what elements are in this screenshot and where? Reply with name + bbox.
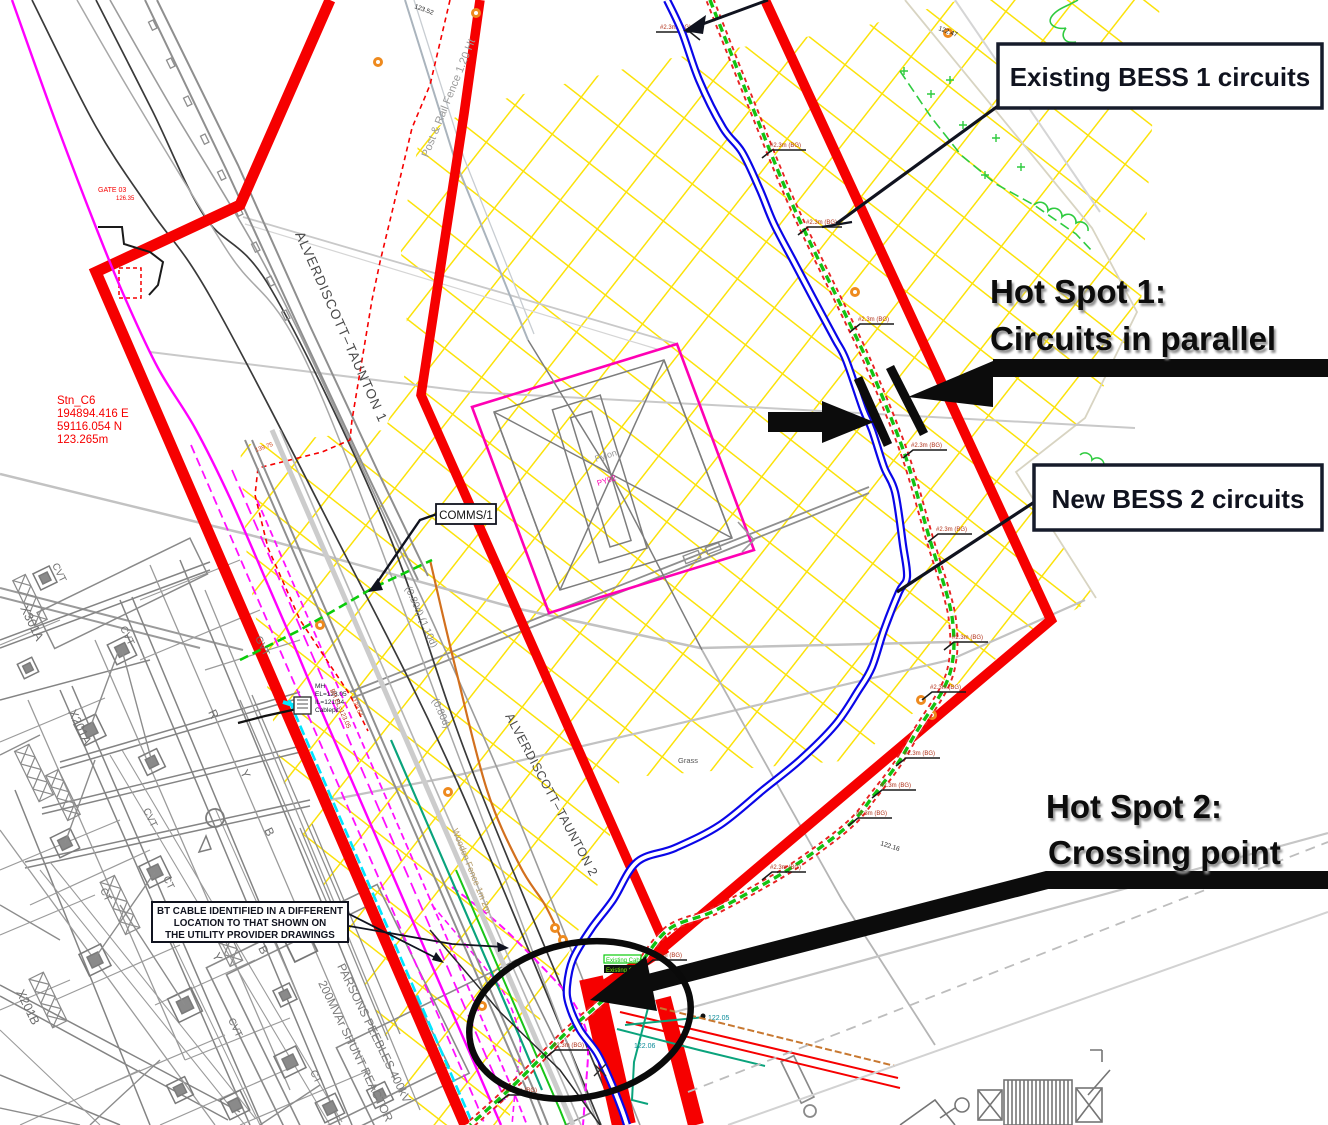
svg-text:Cablepit: Cablepit xyxy=(315,707,339,714)
svg-text:GATE 03: GATE 03 xyxy=(98,187,126,194)
svg-text:#2.3m (BG): #2.3m (BG) xyxy=(911,443,942,449)
svg-text:COMMS/1: COMMS/1 xyxy=(439,510,493,522)
svg-text:#2.3m (BG): #2.3m (BG) xyxy=(952,635,983,641)
svg-text:#2.3m (BG): #2.3m (BG) xyxy=(904,751,935,757)
svg-text:#2.3m (BG): #2.3m (BG) xyxy=(770,143,801,149)
svg-text:B: B xyxy=(261,825,277,838)
svg-text:CT: CT xyxy=(307,1068,323,1085)
svg-text:CVT: CVT xyxy=(225,1016,244,1039)
svg-text:#2.3m (BG): #2.3m (BG) xyxy=(858,317,889,323)
svg-text:Y: Y xyxy=(209,950,225,963)
svg-text:Grass: Grass xyxy=(678,756,698,765)
svg-text:Circuits in parallel: Circuits in parallel xyxy=(990,320,1276,357)
svg-text:59116.054 N: 59116.054 N xyxy=(57,421,122,433)
svg-text:#2.3m (BG): #2.3m (BG) xyxy=(930,685,961,691)
svg-text:#2.3m (BG): #2.3m (BG) xyxy=(856,811,887,817)
svg-text:New BESS 2 circuits: New BESS 2 circuits xyxy=(1052,484,1305,514)
svg-text:CVT: CVT xyxy=(117,624,136,647)
svg-text:123.265m: 123.265m xyxy=(57,434,108,446)
svg-text:122.16: 122.16 xyxy=(879,840,900,853)
svg-text:LOCATION TO THAT SHOWN ON: LOCATION TO THAT SHOWN ON xyxy=(174,918,326,929)
svg-text:122.06: 122.06 xyxy=(634,1043,656,1050)
svg-text:CVT: CVT xyxy=(140,806,159,829)
svg-text:#2.3m (BG): #2.3m (BG) xyxy=(936,527,967,533)
svg-text:Existing BESS 1 circuits: Existing BESS 1 circuits xyxy=(1010,62,1311,92)
svg-text:126.35: 126.35 xyxy=(116,196,135,202)
svg-text:Hot Spot 1:: Hot Spot 1: xyxy=(990,273,1166,310)
svg-text:123.52: 123.52 xyxy=(413,3,434,17)
svg-text:CT: CT xyxy=(160,874,176,891)
svg-text:#2.3m (BG): #2.3m (BG) xyxy=(770,865,801,871)
svg-text:Y: Y xyxy=(237,767,253,780)
svg-text:Stn_C6: Stn_C6 xyxy=(57,395,95,407)
svg-text:#2.3m (BG): #2.3m (BG) xyxy=(553,1043,584,1049)
svg-text:194894.416 E: 194894.416 E xyxy=(57,408,129,420)
svg-text:Hot Spot 2:: Hot Spot 2: xyxy=(1046,788,1222,825)
svg-text:MH: MH xyxy=(315,683,325,690)
svg-text:BT CABLE IDENTIFIED IN A DIFFE: BT CABLE IDENTIFIED IN A DIFFERENT xyxy=(157,906,343,917)
svg-text:Crossing point: Crossing point xyxy=(1048,834,1281,871)
svg-text:#2.3m (BG): #2.3m (BG) xyxy=(880,783,911,789)
svg-text:THE UTILITY PROVIDER DRAWINGS: THE UTILITY PROVIDER DRAWINGS xyxy=(165,930,335,941)
